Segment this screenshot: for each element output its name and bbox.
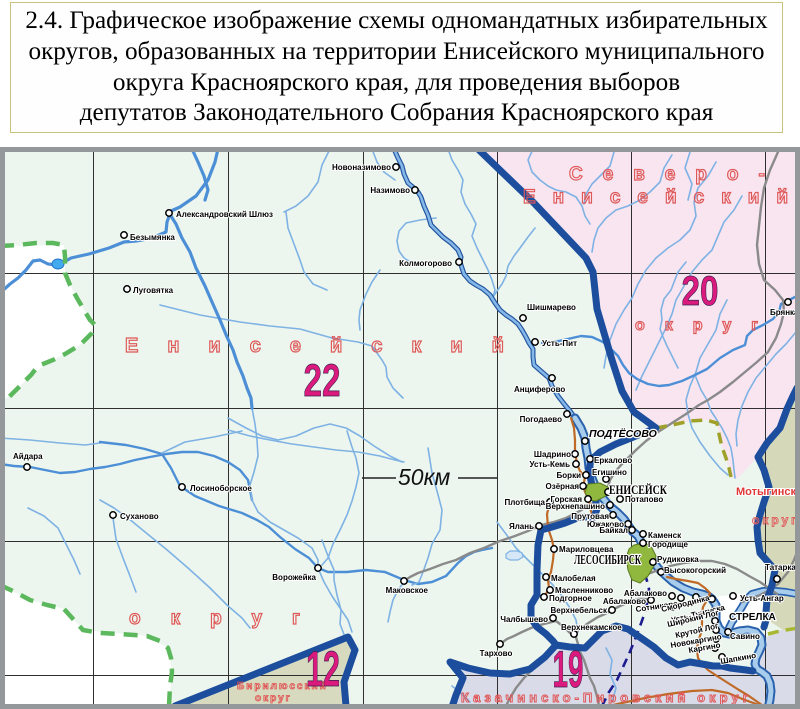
svg-text:Усть-Ангар: Усть-Ангар — [740, 594, 784, 603]
svg-text:Енисейский: Енисейский — [125, 335, 533, 357]
svg-text:Назимово: Назимово — [370, 186, 410, 195]
svg-text:Верхнебельск: Верхнебельск — [551, 606, 608, 615]
svg-text:Ворожейка: Ворожейка — [272, 573, 316, 582]
svg-text:Верхнепашино: Верхнепашино — [546, 502, 605, 511]
svg-text:Борки: Борки — [557, 471, 582, 480]
svg-text:Малобелая: Малобелая — [551, 574, 596, 583]
svg-text:Брянка: Брянка — [770, 308, 799, 317]
svg-text:Погодаево: Погодаево — [520, 415, 562, 424]
svg-text:Ялань: Ялань — [509, 522, 534, 531]
svg-text:19: 19 — [553, 641, 584, 699]
svg-text:Александровский Шлюз: Александровский Шлюз — [176, 210, 273, 219]
svg-text:Татарка: Татарка — [765, 563, 796, 572]
svg-text:Луговятка: Луговятка — [133, 286, 174, 295]
svg-text:Егишино: Егишино — [592, 468, 627, 477]
svg-text:Масленниково: Масленниково — [555, 586, 613, 595]
svg-text:Енисейский: Енисейский — [523, 187, 800, 208]
svg-text:округ: округ — [635, 317, 778, 334]
svg-text:22: 22 — [304, 355, 341, 406]
svg-text:Маковское: Маковское — [386, 586, 429, 595]
svg-text:Еркалово: Еркалово — [594, 456, 632, 465]
svg-text:Тархово: Тархово — [480, 649, 513, 658]
svg-text:Казачинско-Пировский округ: Казачинско-Пировский округ — [461, 690, 752, 705]
svg-text:округ: округ — [752, 513, 799, 527]
svg-text:Анциферово: Анциферово — [514, 385, 565, 394]
svg-text:Шадрино: Шадрино — [534, 450, 571, 459]
svg-text:50км: 50км — [398, 464, 450, 490]
svg-text:округ: округ — [255, 693, 292, 704]
svg-text:округ: округ — [129, 608, 330, 629]
svg-text:Суханово: Суханово — [120, 512, 159, 521]
svg-text:ПОДТЁСОВО: ПОДТЁСОВО — [589, 427, 657, 440]
svg-text:Байкал: Байкал — [599, 526, 628, 535]
svg-text:Рудиковка: Рудиковка — [657, 555, 699, 564]
svg-text:Верхнекамское: Верхнекамское — [561, 623, 622, 632]
svg-text:Савино: Савино — [730, 632, 760, 641]
svg-text:ЛЕСОСИБИРСК: ЛЕСОСИБИРСК — [574, 552, 641, 567]
svg-text:Плотбища: Плотбища — [505, 498, 546, 507]
svg-text:Северо-: Северо- — [569, 164, 785, 185]
svg-text:Усть-Кемь: Усть-Кемь — [530, 460, 571, 469]
svg-text:ЕНИСЕЙСК: ЕНИСЕЙСК — [609, 482, 667, 497]
svg-text:Колмогорово: Колмогорово — [399, 259, 452, 268]
svg-text:20: 20 — [682, 267, 719, 314]
svg-text:Мотыгинский: Мотыгинский — [736, 486, 800, 498]
svg-text:Городище: Городище — [648, 540, 688, 549]
svg-text:Айдара: Айдара — [13, 452, 43, 461]
svg-text:Каменск: Каменск — [648, 531, 682, 540]
svg-text:СТРЕЛКА: СТРЕЛКА — [729, 612, 776, 623]
svg-text:Новоназимово: Новоназимово — [332, 163, 391, 172]
svg-text:Безымянка: Безымянка — [130, 233, 175, 242]
svg-text:Усть-Пит: Усть-Пит — [542, 339, 577, 348]
svg-text:Высокогорский: Высокогорский — [664, 566, 726, 575]
svg-text:Подгорное: Подгорное — [549, 594, 592, 603]
svg-text:Чалбышево: Чалбышево — [500, 615, 548, 624]
svg-text:Шишмарево: Шишмарево — [527, 303, 576, 312]
svg-text:Озёрная: Озёрная — [546, 482, 580, 491]
svg-text:Лосиноборское: Лосиноборское — [190, 484, 252, 493]
svg-text:12: 12 — [306, 641, 340, 697]
